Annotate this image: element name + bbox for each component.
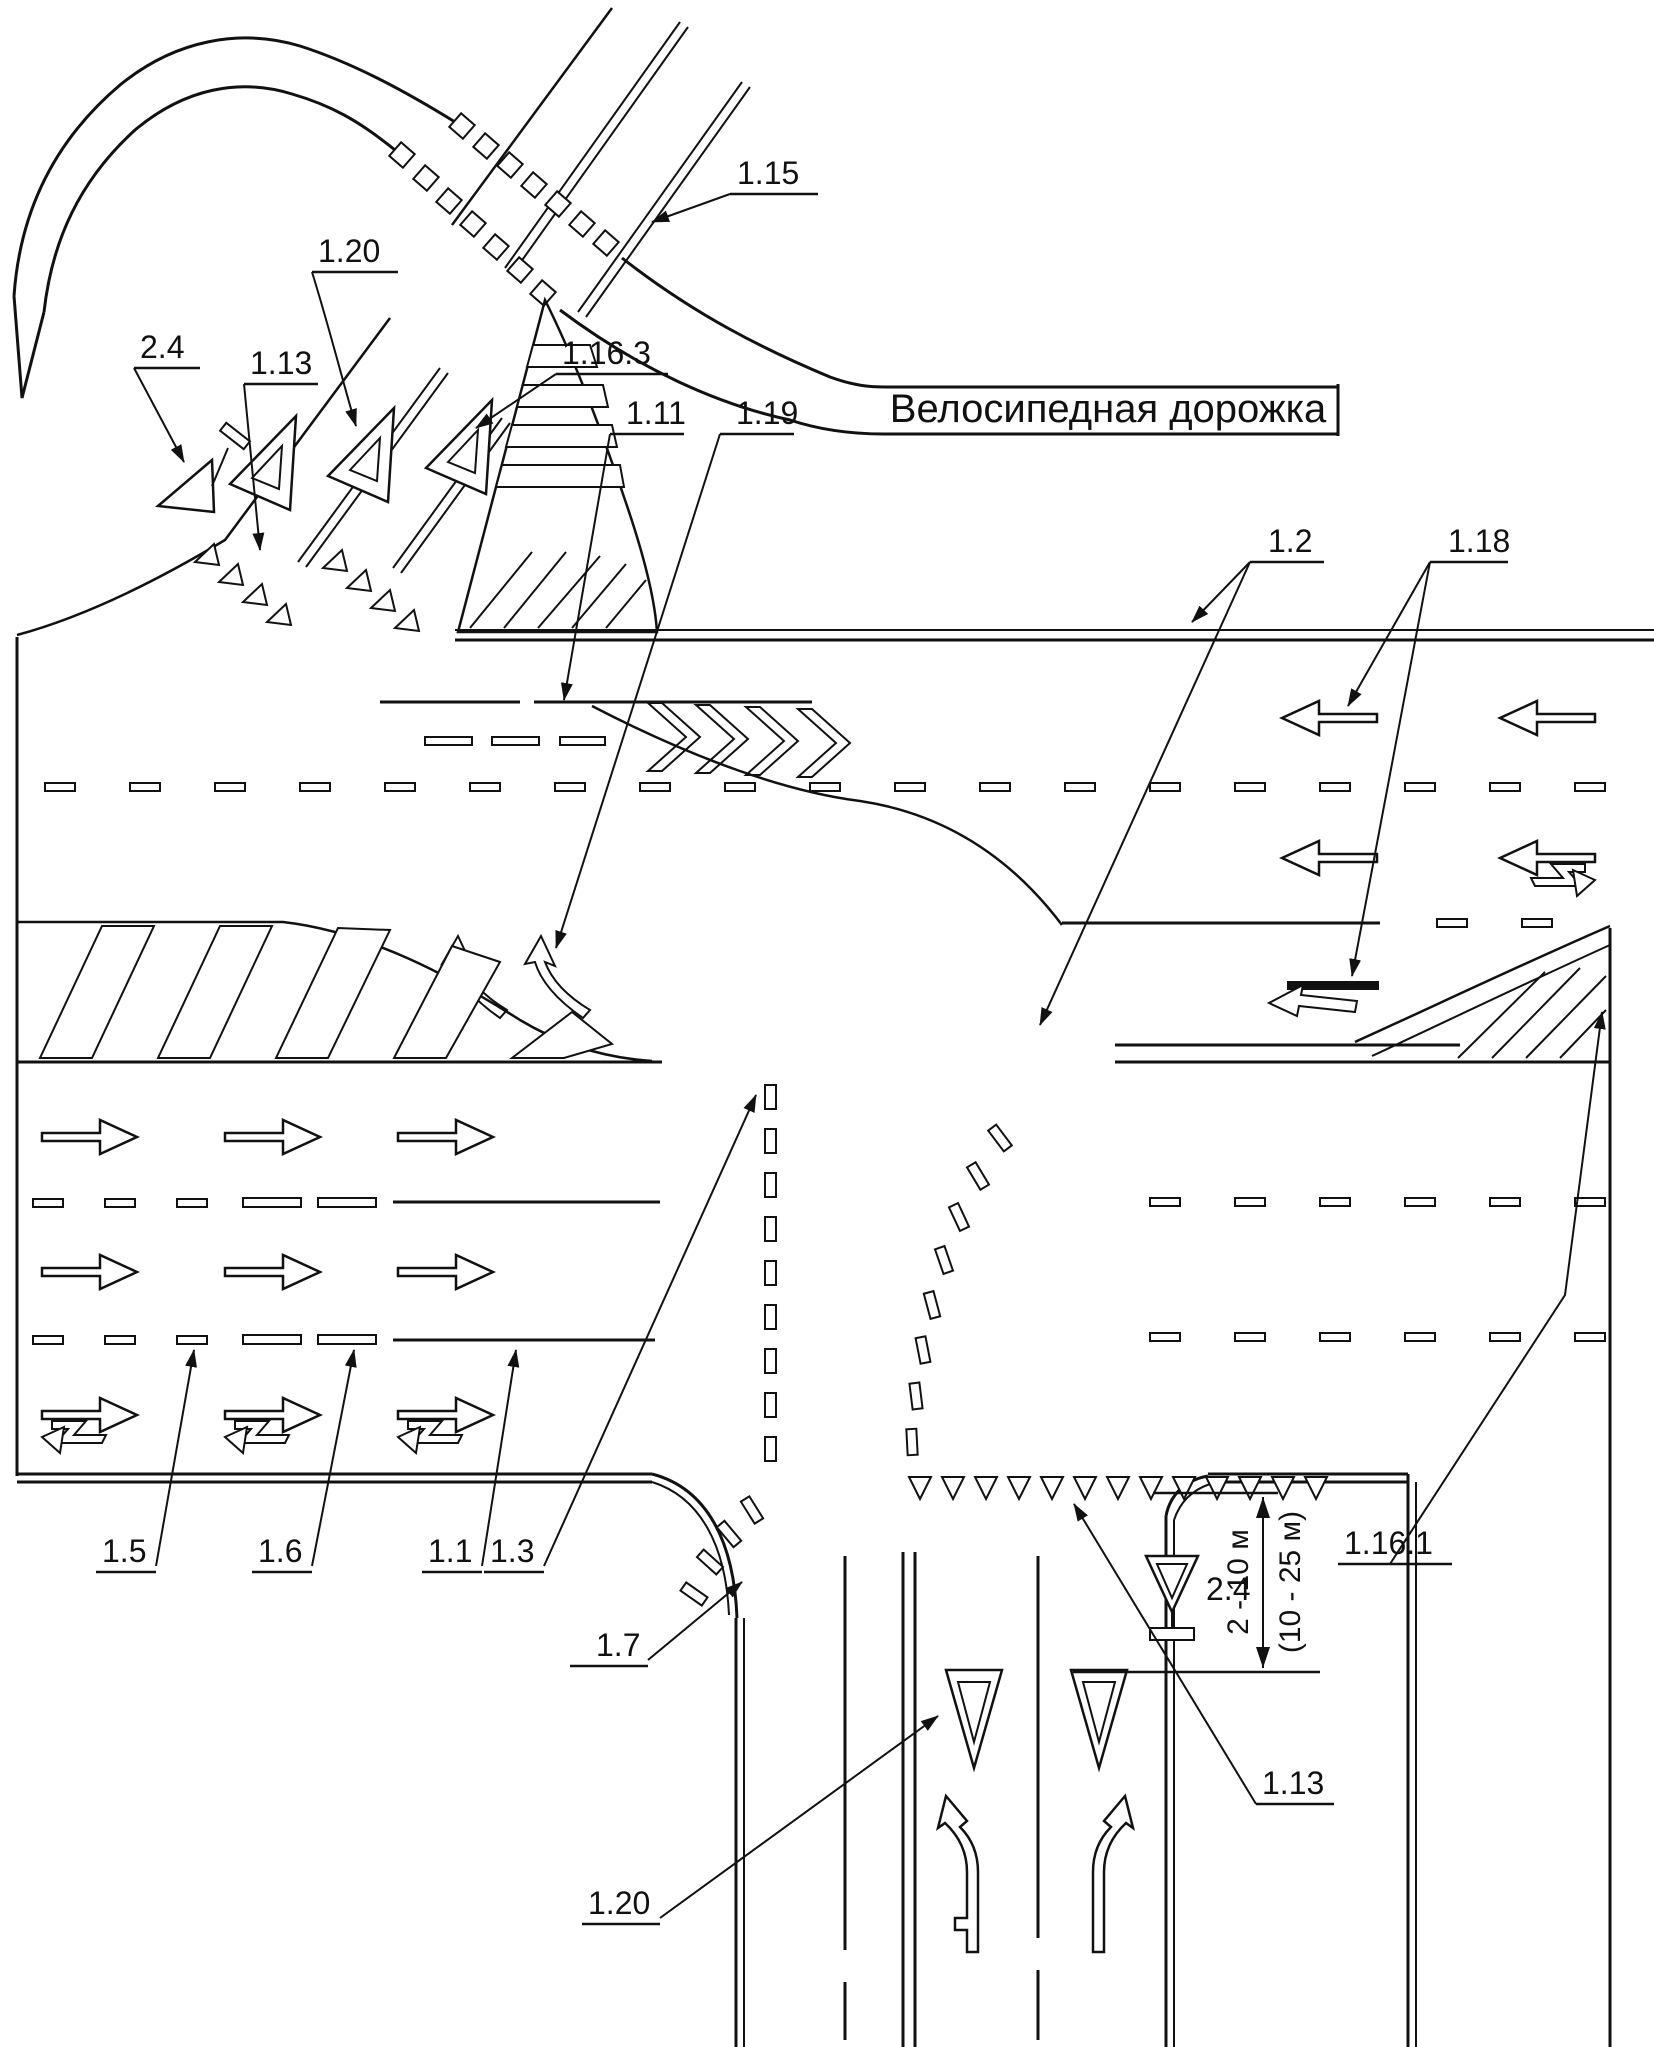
callout-1-7: 1.7 (570, 1582, 742, 1666)
lane-line-lower-1-5-1-6-1-1 (33, 1335, 655, 1344)
marking-1-7-junction-lines (680, 1085, 1011, 1606)
label-1-2: 1.2 (1268, 523, 1312, 559)
merge-boundary-curve (592, 706, 1062, 925)
marking-1-18-westbound-arrows (1282, 701, 1595, 896)
label-1-16-3: 1.16.3 (562, 335, 651, 371)
marking-1-13-row-south (909, 1477, 1327, 1499)
label-1-20-top: 1.20 (318, 233, 380, 269)
label-1-20-bottom: 1.20 (588, 1885, 650, 1921)
ramp-lane-line-1n (505, 22, 680, 268)
bike-path-label: Велосипедная дорожка (890, 387, 1327, 431)
label-1-6: 1.6 (258, 1533, 302, 1569)
marking-1-18-eastbound-arrows-row1 (42, 1120, 493, 1154)
marking-1-15-crossing (389, 113, 618, 305)
label-1-13-top: 1.13 (250, 345, 312, 381)
callout-1-3: 1.3 (484, 1095, 756, 1572)
marking-1-5-center-dashes (45, 783, 1605, 791)
marking-1-18-eastbound-arrows-row2 (42, 1255, 493, 1289)
label-1-11: 1.11 (626, 395, 686, 431)
east-arm-lane-dashes-row1 (1150, 1198, 1605, 1206)
label-1-15: 1.15 (737, 155, 799, 191)
label-1-19: 1.19 (736, 395, 798, 431)
bike-path-tail (14, 296, 44, 398)
chevron-guide-markings (592, 703, 1062, 925)
label-1-13-bottom: 1.13 (1262, 1765, 1324, 1801)
merge-lane-line (1062, 919, 1552, 927)
bike-path-outer-edge-b (622, 258, 1338, 387)
callout-1-18: 1.18 (1348, 523, 1510, 976)
bike-path-inner-edge-a (44, 87, 395, 312)
label-1-7: 1.7 (596, 1627, 640, 1663)
main-road (17, 630, 1654, 1476)
callout-1-6: 1.6 (252, 1350, 354, 1572)
ramp-road (17, 8, 750, 635)
scheme-canvas: Велосипедная дорожка (0, 0, 1654, 2047)
dimension-primary: 2 - 10 м (1222, 1529, 1255, 1635)
label-1-3: 1.3 (490, 1533, 534, 1569)
marking-1-13-ramp-rows (195, 544, 419, 631)
callout-1-5: 1.5 (96, 1350, 194, 1572)
label-1-16-1: 1.16.1 (1344, 1525, 1433, 1561)
marking-1-16-1-island (1355, 926, 1610, 1058)
right-turn-arrow (1093, 1796, 1133, 1952)
marking-1-3-double-line (17, 1474, 652, 1482)
road-marking-scheme: Велосипедная дорожка (0, 0, 1654, 2047)
marking-1-19-hooked-arrows-row3 (42, 1398, 493, 1453)
lane-line-upper (33, 1198, 660, 1207)
label-1-1: 1.1 (428, 1533, 472, 1569)
bike-path-outer-edge-a (14, 38, 455, 296)
sign-2-4-top (158, 423, 250, 512)
callout-1-20-top: 1.20 (312, 233, 398, 426)
ramp-lane-line-2n (578, 82, 742, 312)
callout-1-2: 1.2 (1040, 523, 1324, 1025)
bike-path: Велосипедная дорожка (14, 38, 1338, 436)
sign-2-4-bottom (1146, 1556, 1198, 1640)
dimension-callout: 2 - 10 м (10 - 25 м) (1073, 1493, 1320, 1672)
south-road: 2.4 2 - 10 м (10 - 25 м) (652, 1474, 1327, 2047)
callout-1-20-bottom: 1.20 (582, 1716, 938, 1924)
left-turn-arrow (938, 1796, 978, 1952)
label-2-4-top: 2.4 (140, 329, 184, 365)
ramp-lane-line-2n2 (586, 87, 750, 317)
dimension-secondary: (10 - 25 м) (1274, 1511, 1307, 1653)
label-1-5: 1.5 (102, 1533, 146, 1569)
label-1-18: 1.18 (1448, 523, 1510, 559)
marking-1-18-merge-arrow (1269, 981, 1379, 1016)
callout-2-4-top: 2.4 (134, 329, 200, 462)
